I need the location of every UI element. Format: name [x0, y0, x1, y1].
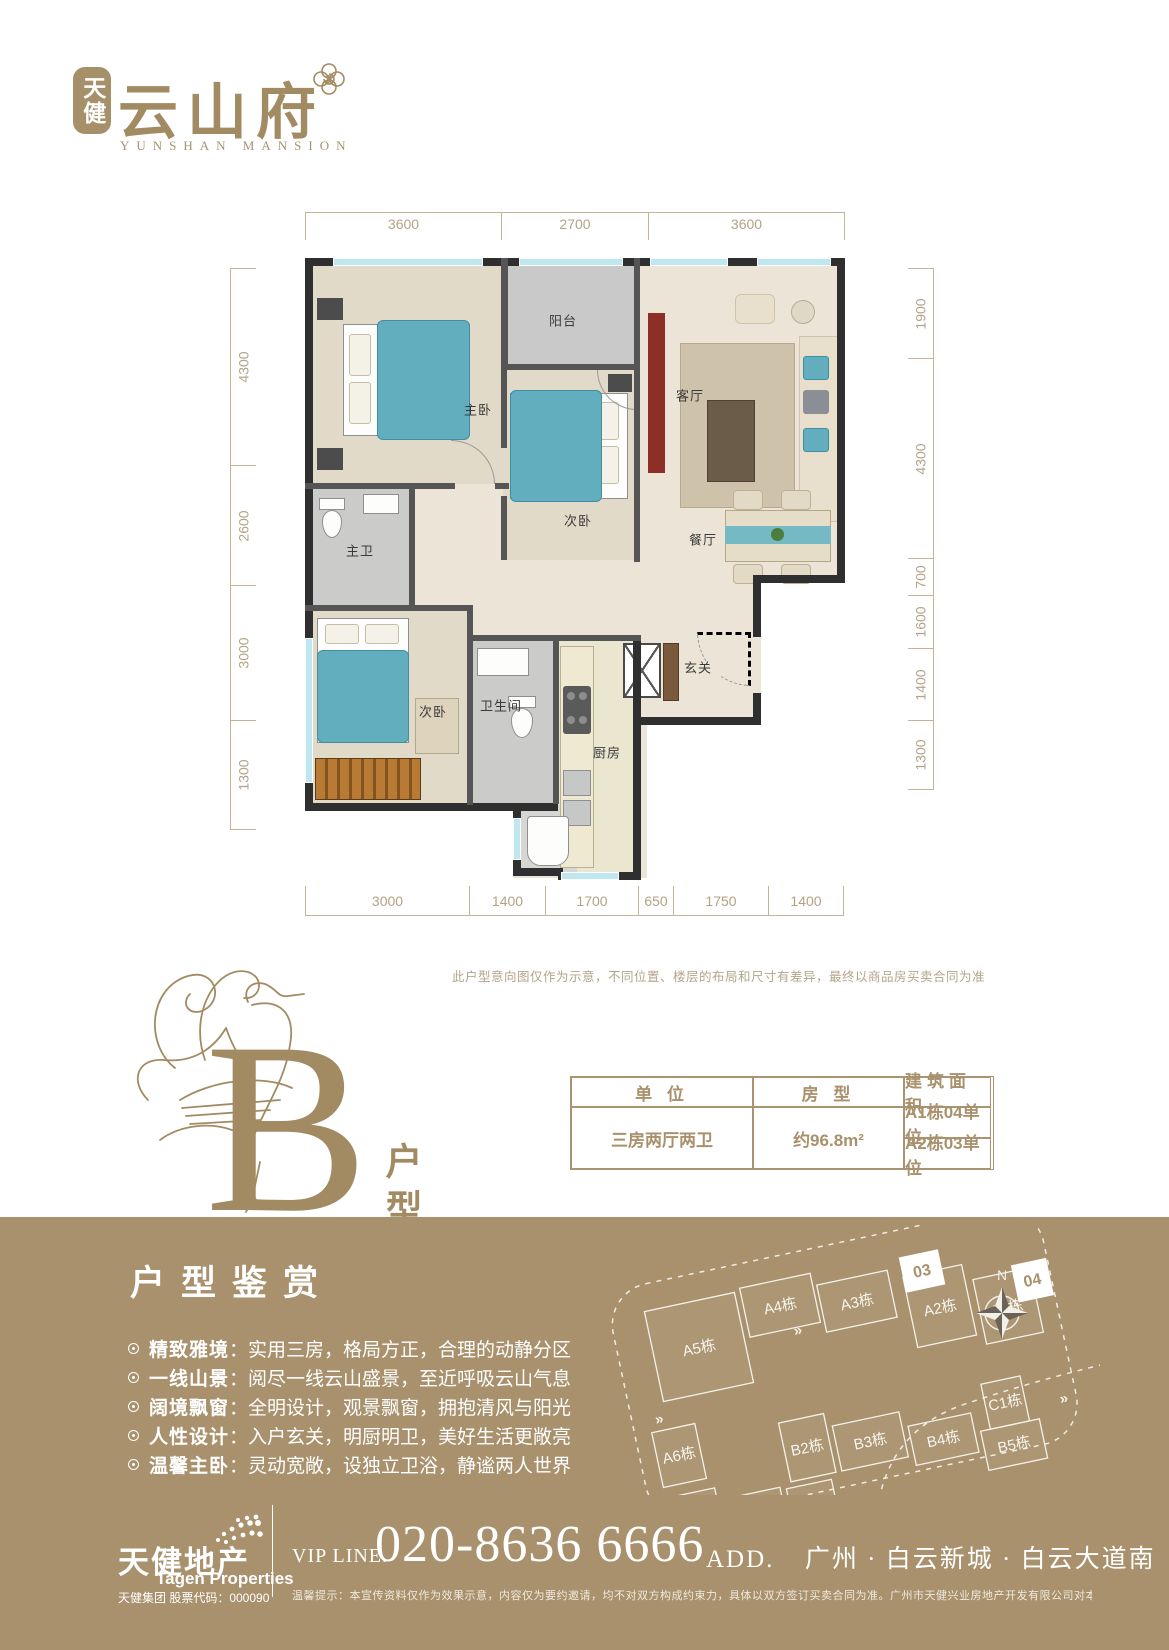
dim-chain-bottom: 3000 1400 1700 650 1750 1400: [305, 886, 844, 916]
sofa-pillow: [803, 428, 829, 452]
legal-disclaimer: 温馨提示：本宣传资料仅作为效果示意，内容仅为要约邀请，均不对双方构成约束力，具体…: [292, 1587, 1092, 1603]
wall: [640, 717, 761, 725]
toilet-tank: [319, 498, 345, 510]
brochure-page: 天健 云山府 YUNSHAN MANSION 3600 2700 3600 30…: [0, 0, 1169, 1650]
burner: [579, 692, 587, 700]
feature-colon: ：: [229, 1364, 248, 1391]
wall: [501, 496, 507, 560]
wall: [553, 641, 559, 804]
wall: [513, 868, 563, 876]
feature-item: 温馨主卧：灵动宽敞，设独立卫浴，静谧两人世界: [128, 1451, 571, 1478]
dim-value: 3600: [305, 212, 501, 240]
feature-item: 阔境飘窗：全明设计，观景飘窗，拥抱清风与阳光: [128, 1393, 571, 1420]
dim-value: 1600: [913, 606, 929, 637]
wall: [409, 488, 415, 610]
feature-label: 人性设计: [149, 1422, 229, 1449]
wall: [753, 575, 761, 637]
wall: [633, 640, 641, 880]
spec-room-type: 三房两厅两卫: [571, 1107, 753, 1169]
spec-header-type: 房 型: [753, 1077, 904, 1107]
plant: [771, 528, 784, 541]
window: [757, 258, 831, 266]
dim-value: 2600: [236, 510, 252, 541]
blanket: [377, 320, 470, 440]
pillow: [325, 624, 359, 644]
sink-basin: [563, 770, 591, 796]
pillow: [599, 446, 619, 484]
dim-value: 3000: [236, 637, 252, 668]
wall: [305, 483, 455, 489]
room-label-entry: 玄关: [684, 658, 712, 677]
room-label-dining: 餐厅: [689, 530, 717, 549]
plan-cutout: [647, 725, 845, 883]
vip-line-label: VIP LINE.: [292, 1545, 388, 1568]
feature-text: 灵动宽敞，设独立卫浴，静谧两人世界: [248, 1451, 571, 1478]
feature-item: 一线山景：阅尽一线云山盛景，至近呼吸云山气息: [128, 1364, 571, 1391]
feature-colon: ：: [229, 1393, 248, 1420]
room-label-master: 主卧: [464, 400, 492, 419]
window: [305, 638, 313, 783]
pillow: [349, 334, 371, 376]
wall: [470, 635, 560, 641]
blanket: [510, 390, 602, 502]
brand-seal-text: 天健: [78, 76, 106, 126]
nightstand: [317, 298, 343, 320]
dim-value: 1400: [469, 886, 545, 916]
wall: [501, 370, 507, 448]
sofa-pillow: [803, 356, 829, 380]
room-label-bed3: 次卧: [419, 702, 447, 721]
feature-label: 温馨主卧: [149, 1451, 229, 1478]
coffee-table: [707, 400, 755, 482]
dim-value: 1300: [913, 739, 929, 770]
spec-unit-2: A2栋03单位: [904, 1138, 991, 1169]
blanket: [317, 650, 409, 743]
address-value: 广州 · 白云新城 · 白云大道南: [805, 1546, 1156, 1573]
pillow: [365, 624, 399, 644]
burner: [579, 716, 587, 724]
feature-item: 精致雅境：实用三房，格局方正，合理的动静分区: [128, 1335, 571, 1362]
window: [519, 258, 623, 266]
window: [513, 818, 521, 860]
entrance-marker-icon: »: [1058, 1390, 1070, 1408]
entry-cabinet: [663, 643, 679, 701]
wall: [495, 483, 509, 489]
tv-cabinet: [648, 313, 665, 473]
features-title: 户型鉴赏: [130, 1255, 334, 1306]
feature-text: 全明设计，观景飘窗，拥抱清风与阳光: [248, 1393, 571, 1420]
vip-phone-number: 020-8636 6666: [375, 1515, 704, 1574]
bullet-icon: [128, 1401, 139, 1412]
nightstand: [317, 448, 343, 470]
feature-text: 入户玄关，明厨明卫，美好生活更敞亮: [248, 1422, 571, 1449]
dim-value: 650: [638, 886, 673, 916]
entrance-marker-icon: »: [653, 1410, 665, 1428]
burner: [567, 716, 575, 724]
armchair: [735, 294, 775, 324]
wall: [634, 258, 640, 370]
pillow: [599, 402, 619, 440]
dim-value: 1300: [236, 759, 252, 790]
wall: [760, 575, 845, 583]
feature-item: 人性设计：入户玄关，明厨明卫，美好生活更敞亮: [128, 1422, 571, 1449]
feature-label: 阔境飘窗: [149, 1393, 229, 1420]
bullet-icon: [128, 1430, 139, 1441]
feature-text: 实用三房，格局方正，合理的动静分区: [248, 1335, 571, 1362]
spec-header-unit: 单 位: [571, 1077, 753, 1107]
dim-value: 3600: [648, 212, 845, 240]
footer-stock-code: 天健集团 股票代码：000090: [118, 1589, 269, 1606]
window: [333, 258, 483, 266]
footer-divider: [272, 1505, 273, 1597]
room-label-bed2: 次卧: [564, 511, 592, 530]
wall: [553, 635, 641, 641]
compass-north-label: N: [997, 1267, 1007, 1283]
bottom-band: 户型鉴赏 精致雅境：实用三房，格局方正，合理的动静分区 一线山景：阅尽一线云山盛…: [0, 1217, 1169, 1650]
dim-value: 4300: [913, 443, 929, 474]
wardrobe: [315, 758, 421, 800]
vanity: [477, 648, 529, 676]
window: [561, 872, 619, 880]
dim-value: 1400: [768, 886, 844, 916]
dim-value: 2700: [501, 212, 648, 240]
floor-plan: 主卧 阳台 客厅 次卧 餐厅 主卫 次卧 卫生间 厨房 玄关: [305, 258, 845, 883]
room-label-kitchen: 厨房: [593, 743, 621, 762]
window: [650, 258, 728, 266]
dim-value: 1900: [913, 298, 929, 329]
sink: [363, 494, 399, 514]
wall: [634, 370, 640, 562]
dim-value: 1750: [673, 886, 768, 916]
wall: [305, 605, 473, 611]
dim-value: 700: [912, 565, 928, 588]
site-map: A5栋 A4栋 A3栋 A2栋 A1栋 A6栋 A7栋 A8栋 B1栋 B2栋 …: [600, 1225, 1100, 1495]
unit-04-label: 04: [1022, 1271, 1043, 1291]
bullet-icon: [128, 1459, 139, 1470]
side-table: [791, 300, 815, 324]
feature-colon: ：: [229, 1335, 248, 1362]
wall: [501, 364, 640, 370]
dim-value: 1700: [545, 886, 638, 916]
room-label-living: 客厅: [676, 386, 704, 405]
room-label-bath: 卫生间: [480, 696, 522, 715]
bullet-icon: [128, 1343, 139, 1354]
chair: [781, 490, 811, 510]
brand-name-en: YUNSHAN MANSION: [120, 138, 352, 154]
wall: [501, 258, 508, 366]
dim-value: 3000: [305, 886, 469, 916]
dim-value: 1400: [913, 669, 929, 700]
washer: [527, 816, 569, 866]
feature-label: 精致雅境: [149, 1335, 229, 1362]
spec-area: 约96.8m²: [753, 1107, 904, 1169]
address-label: ADD.: [706, 1546, 774, 1573]
feature-text: 阅尽一线云山盛景，至近呼吸云山气息: [248, 1364, 571, 1391]
wall: [837, 258, 845, 583]
plan-cutout: [305, 811, 513, 883]
dim-chain-right: 1900 4300 700 1600 1400 1300: [908, 268, 934, 790]
phoenix-illustration: [120, 950, 350, 1220]
pillow: [349, 382, 371, 424]
bullet-icon: [128, 1372, 139, 1383]
dim-value: 4300: [236, 351, 252, 382]
address-line: ADD. 广州 · 白云新城 · 白云大道南: [706, 1539, 1156, 1575]
spec-table: 单 位 房 型 建筑面积 A1栋04单位 三房两厅两卫 约96.8m² A2栋0…: [570, 1076, 994, 1170]
brand-seal: 天健: [73, 67, 111, 134]
feature-colon: ：: [229, 1422, 248, 1449]
sofa-pillow: [803, 390, 829, 414]
feature-colon: ：: [229, 1451, 248, 1478]
elevator-shaft: [623, 643, 661, 698]
plan-disclaimer: 此户型意向图仅作为示意，不同位置、楼层的布局和尺寸有差异，最终以商品房买卖合同为…: [452, 966, 985, 985]
feature-label: 一线山景: [149, 1364, 229, 1391]
dim-chain-top: 3600 2700 3600: [305, 212, 845, 240]
brand-flower-icon: [310, 60, 348, 98]
room-label-masterbath: 主卫: [346, 541, 374, 560]
room-label-balcony: 阳台: [549, 311, 577, 330]
chair: [733, 490, 763, 510]
unit-03-label: 03: [912, 1261, 933, 1281]
burner: [567, 692, 575, 700]
dim-chain-left: 4300 2600 3000 1300: [230, 268, 256, 830]
